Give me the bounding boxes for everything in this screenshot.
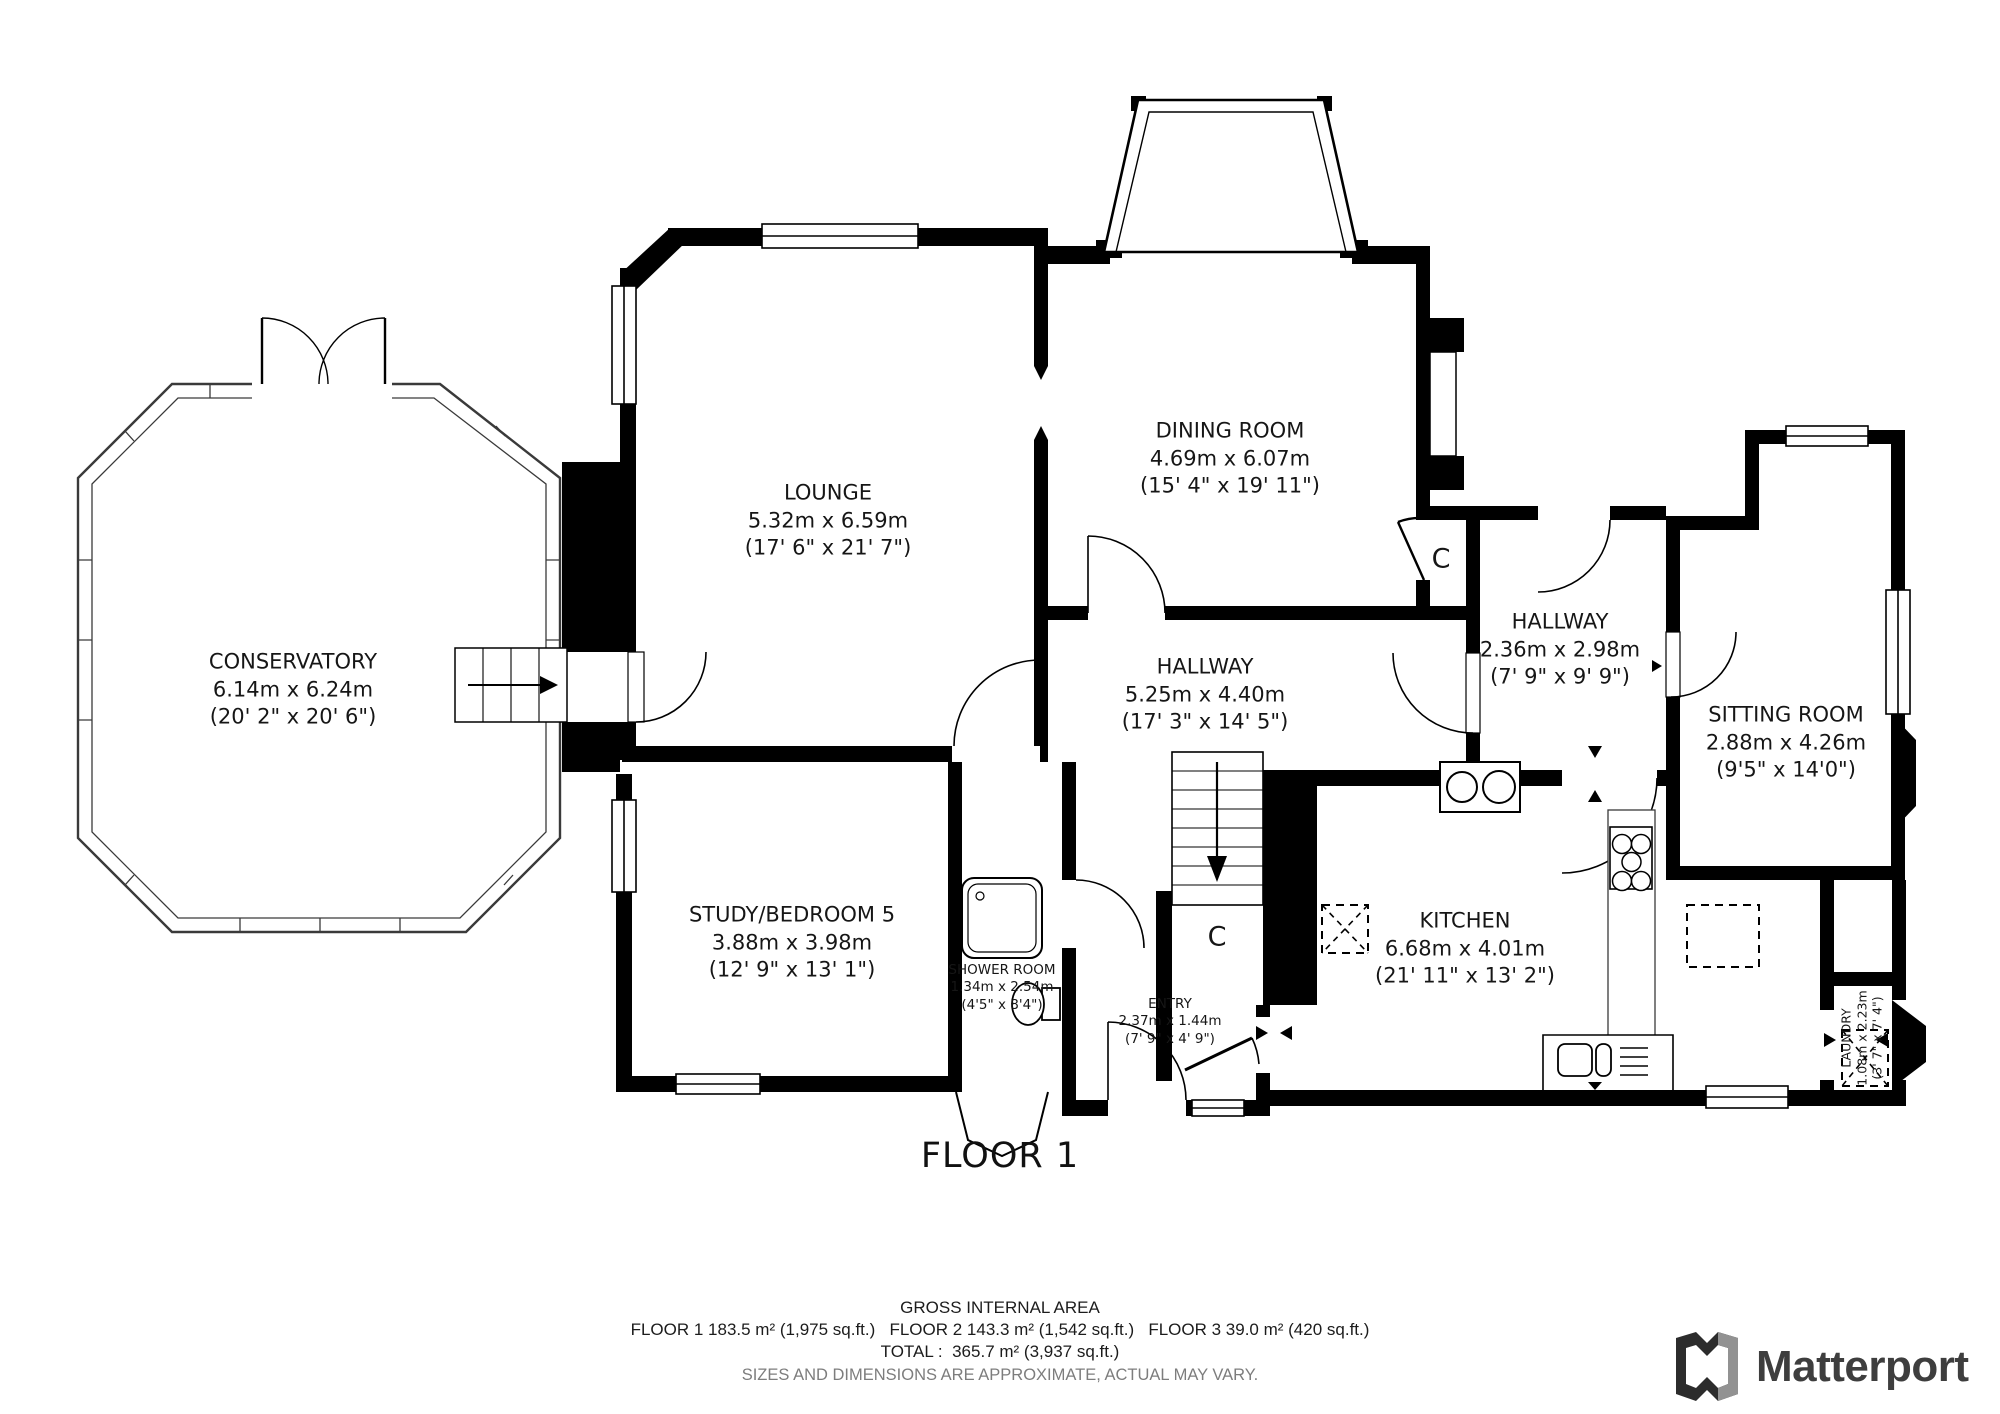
label-entry: ENTRY 2.37m x 1.44m (7' 9" x 4' 9"): [1119, 996, 1222, 1048]
room-imperial: (7' 9" x 4' 9"): [1119, 1031, 1222, 1048]
room-metric: 6.14m x 6.24m: [209, 676, 377, 704]
room-metric: 5.32m x 6.59m: [745, 507, 912, 535]
understairs-door-arc: [1252, 1038, 1259, 1064]
matterport-logo-icon: [1672, 1330, 1742, 1404]
room-metric: 2.37m x 1.44m: [1119, 1013, 1222, 1030]
conservatory-steps: [455, 648, 567, 722]
rear-hallway-door-arc: [1393, 653, 1473, 733]
floor-areas: FLOOR 1 183.5 m² (1,975 sq.ft.) FLOOR 2 …: [600, 1319, 1400, 1340]
label-hallway-rear: HALLWAY 2.36m x 2.98m (7' 9" x 9' 9"): [1480, 608, 1640, 691]
room-metric: 1.08m x 2.23m: [1854, 990, 1870, 1085]
label-hallway-main: HALLWAY 5.25m x 4.40m (17' 3" x 14' 5"): [1122, 653, 1289, 736]
conservatory-step-door-arc: [636, 652, 706, 722]
main-staircase: [1172, 752, 1263, 905]
label-shower-room: SHOWER ROOM 1.34m x 2.54m (4'5" x 8'4"): [948, 962, 1055, 1014]
room-metric: 2.36m x 2.98m: [1480, 636, 1640, 664]
label-closet-understairs: C: [1208, 922, 1227, 953]
room-conservatory: [78, 318, 560, 932]
room-metric: 1.34m x 2.54m: [948, 979, 1055, 996]
label-conservatory: CONSERVATORY 6.14m x 6.24m (20' 2" x 20'…: [209, 648, 377, 731]
total-area: TOTAL : 365.7 m² (3,937 sq.ft.): [600, 1341, 1400, 1362]
room-name: DINING ROOM: [1140, 417, 1320, 445]
room-imperial: (7' 9" x 9' 9"): [1480, 664, 1640, 692]
lounge-door-arc: [954, 660, 1040, 746]
room-imperial: (4'5" x 8'4"): [948, 997, 1055, 1014]
dining-bay-window: [1104, 100, 1358, 252]
room-name: SHOWER ROOM: [948, 962, 1055, 979]
disclaimer: SIZES AND DIMENSIONS ARE APPROXIMATE, AC…: [600, 1365, 1400, 1386]
kitchen-hob: [1610, 827, 1652, 891]
label-dining-room: DINING ROOM 4.69m x 6.07m (15' 4" x 19' …: [1140, 417, 1320, 500]
dining-door-arc: [1088, 536, 1165, 613]
hall-top-door-arc: [1538, 520, 1610, 592]
study-left-window: [612, 800, 636, 892]
lounge-top-window: [762, 224, 918, 248]
room-name: ENTRY: [1119, 996, 1222, 1013]
room-imperial: (21' 11" x 13' 2"): [1375, 963, 1555, 991]
room-name: HALLWAY: [1480, 608, 1640, 636]
room-imperial: (20' 2" x 20' 6"): [209, 704, 377, 732]
room-name: LOUNGE: [745, 479, 912, 507]
room-imperial: (15' 4" x 19' 11"): [1140, 473, 1320, 501]
area-summary: GROSS INTERNAL AREA FLOOR 1 183.5 m² (1,…: [600, 1296, 1400, 1387]
matterport-brand: Matterport: [1672, 1330, 1969, 1404]
room-imperial: (12' 9" x 13' 1"): [689, 957, 895, 985]
label-closet-upper: C: [1432, 544, 1451, 575]
sitting-top-window: [1786, 426, 1868, 446]
room-imperial: (17' 6" x 21' 7"): [745, 535, 912, 563]
room-name: STUDY/BEDROOM 5: [689, 901, 895, 929]
room-imperial: (3' 7" x 7' 4"): [1870, 990, 1886, 1085]
entry-sidelight-window: [1192, 1100, 1244, 1116]
label-laundry: LAUNDRY 1.08m x 2.23m (3' 7" x 7' 4"): [1839, 990, 1886, 1085]
lounge-left-window: [612, 286, 636, 404]
room-name: HALLWAY: [1122, 653, 1289, 681]
shower-door-arc: [1076, 880, 1144, 948]
room-metric: 2.88m x 4.26m: [1706, 729, 1866, 757]
sitting-door-arc: [1671, 632, 1736, 697]
label-kitchen: KITCHEN 6.68m x 4.01m (21' 11" x 13' 2"): [1375, 907, 1555, 990]
kitchen-window: [1706, 1086, 1788, 1108]
room-imperial: (9'5" x 14'0"): [1706, 757, 1866, 785]
kitchen-sink-top: [1440, 762, 1520, 812]
label-study: STUDY/BEDROOM 5 3.88m x 3.98m (12' 9" x …: [689, 901, 895, 984]
room-metric: 3.88m x 3.98m: [689, 929, 895, 957]
dining-closet-door: [1398, 518, 1424, 580]
gross-area-title: GROSS INTERNAL AREA: [600, 1297, 1400, 1318]
sitting-right-window: [1886, 590, 1910, 714]
room-metric: 4.69m x 6.07m: [1140, 445, 1320, 473]
room-name: SITTING ROOM: [1706, 701, 1866, 729]
floor-title: FLOOR 1: [921, 1136, 1079, 1176]
room-name: CONSERVATORY: [209, 648, 377, 676]
room-metric: 6.68m x 4.01m: [1375, 935, 1555, 963]
study-bottom-window: [676, 1074, 760, 1094]
label-sitting-room: SITTING ROOM 2.88m x 4.26m (9'5" x 14'0"…: [1706, 701, 1866, 784]
floorplan-page: CONSERVATORY 6.14m x 6.24m (20' 2" x 20'…: [0, 0, 2000, 1414]
room-imperial: (17' 3" x 14' 5"): [1122, 709, 1289, 737]
room-name: KITCHEN: [1375, 907, 1555, 935]
room-name: LAUNDRY: [1839, 990, 1855, 1085]
kitchen-sink-unit-bottom: [1543, 1035, 1673, 1090]
room-metric: 5.25m x 4.40m: [1122, 681, 1289, 709]
dining-fireplace: [1430, 352, 1456, 456]
matterport-wordmark: Matterport: [1756, 1342, 1969, 1392]
label-lounge: LOUNGE 5.32m x 6.59m (17' 6" x 21' 7"): [745, 479, 912, 562]
